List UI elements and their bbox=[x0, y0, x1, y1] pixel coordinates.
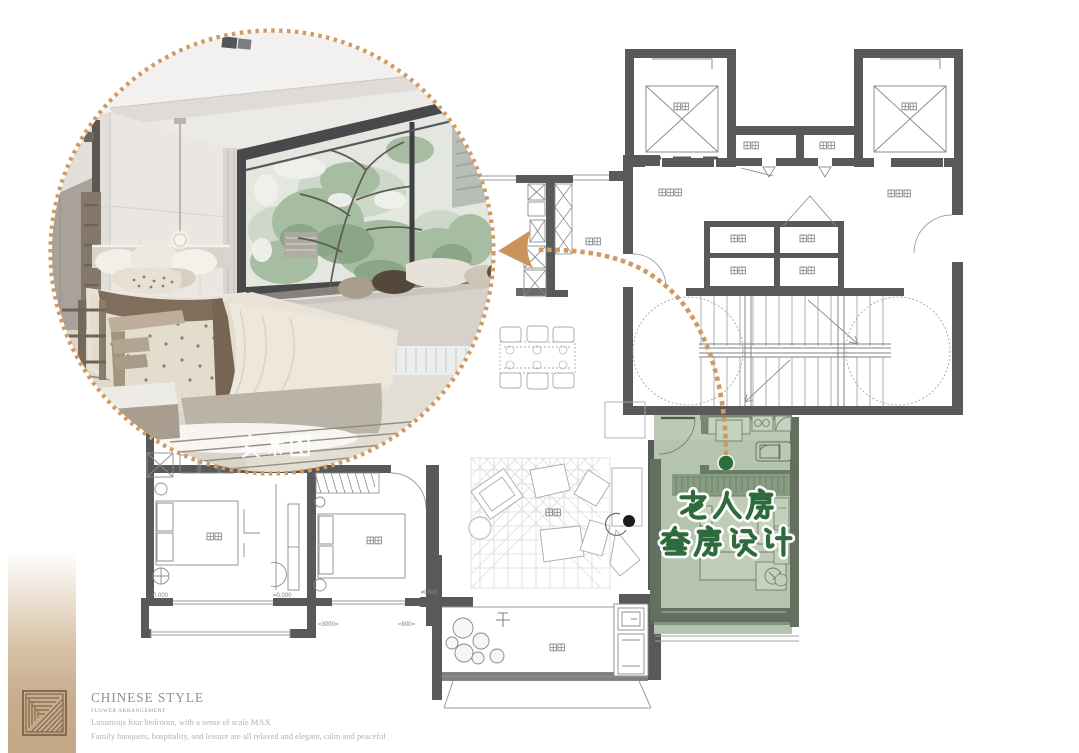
svg-text:Luxurious four bedroom, with a: Luxurious four bedroom, with a sense of … bbox=[91, 717, 271, 727]
svg-text:FLOWER ARRANGEMENT: FLOWER ARRANGEMENT bbox=[91, 708, 166, 714]
svg-text:=0.000: =0.000 bbox=[273, 593, 292, 599]
svg-text:0.000: 0.000 bbox=[153, 593, 169, 599]
svg-text:Family banquets, hospitality,: Family banquets, hospitality, and leisur… bbox=[91, 731, 386, 741]
svg-text:=3000=: =3000= bbox=[318, 622, 339, 628]
svg-text:CHINESE STYLE: CHINESE STYLE bbox=[91, 690, 204, 705]
svg-text:≠8888: ≠8888 bbox=[421, 590, 438, 596]
svg-text:=900=: =900= bbox=[398, 622, 416, 628]
